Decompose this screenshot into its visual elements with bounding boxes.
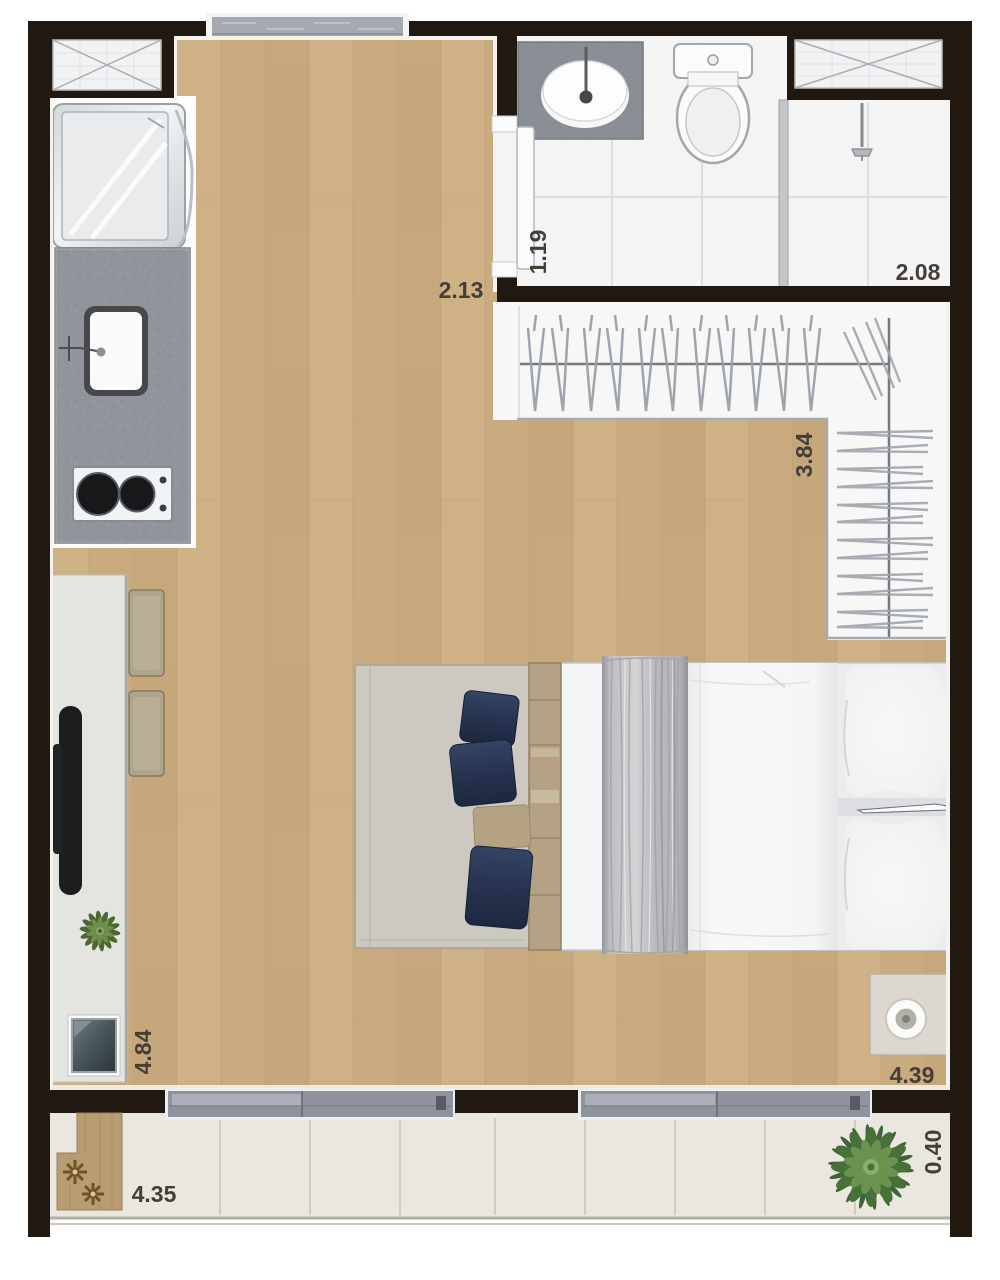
svg-text:4.84: 4.84: [130, 1029, 156, 1074]
svg-text:4.39: 4.39: [890, 1062, 935, 1088]
svg-text:1.19: 1.19: [525, 230, 551, 275]
svg-text:0.40: 0.40: [920, 1130, 946, 1175]
svg-text:4.35: 4.35: [132, 1181, 177, 1207]
svg-text:2.13: 2.13: [439, 277, 484, 303]
svg-text:2.08: 2.08: [896, 259, 941, 285]
svg-text:3.84: 3.84: [791, 432, 817, 477]
